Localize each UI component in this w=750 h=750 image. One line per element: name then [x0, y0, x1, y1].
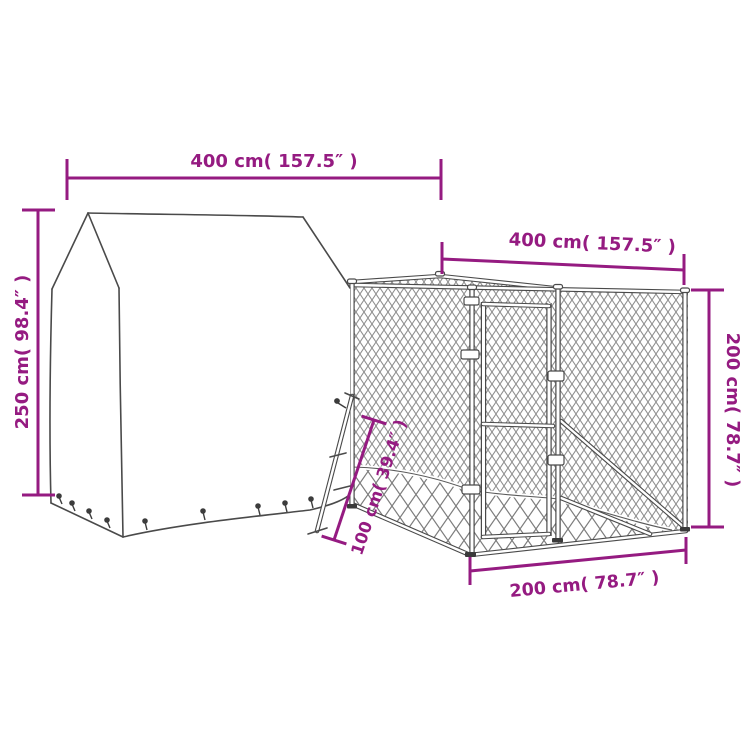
dimension-top-right-label: 400 cm( 157.5″ ) — [508, 229, 676, 258]
gate-latch-bottom — [462, 485, 480, 494]
dimension-top-right: 400 cm( 157.5″ ) — [442, 229, 684, 285]
gate-bottom-rail — [483, 534, 549, 537]
gate-hinge-top — [548, 371, 564, 381]
dimension-left: 250 cm( 98.4″ ) — [12, 210, 55, 495]
gate-latch-top — [461, 350, 479, 359]
gate-mid-rail — [483, 424, 553, 426]
gate-hinge-bottom — [548, 455, 564, 465]
dimension-line — [442, 259, 684, 270]
cover-body — [51, 213, 350, 537]
dimension-bottom-label: 200 cm( 78.7″ ) — [509, 568, 661, 602]
dimension-right-label: 200 cm( 78.7″ ) — [722, 333, 743, 488]
dimension-left-label: 250 cm( 98.4″ ) — [12, 275, 33, 430]
diagram-canvas: 400 cm( 157.5″ ) 400 cm( 157.5″ ) 250 cm… — [0, 0, 750, 750]
gate-top-clamp — [464, 297, 479, 305]
product-dimension-diagram: 400 cm( 157.5″ ) 400 cm( 157.5″ ) 250 cm… — [0, 0, 750, 750]
dimension-right: 200 cm( 78.7″ ) — [691, 290, 743, 527]
kennel-run-drawing — [347, 272, 690, 558]
dimension-top-left-label: 400 cm( 157.5″ ) — [190, 151, 357, 172]
dimension-top-left: 400 cm( 157.5″ ) — [67, 151, 441, 200]
kennel-cover-drawing — [50, 213, 359, 537]
gate-top-rail — [483, 304, 549, 306]
